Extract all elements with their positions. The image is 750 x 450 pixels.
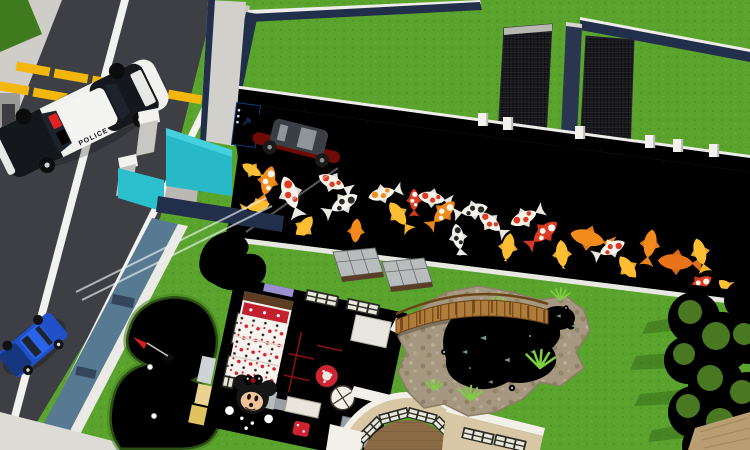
purple-flower [527,333,532,338]
fence-post [478,113,488,126]
design-3d-viewport[interactable]: POLICE [0,0,750,450]
fence-post [673,139,683,152]
golf-ball[interactable] [147,364,152,369]
purple-flower [441,349,447,355]
panel-bench[interactable] [382,258,433,292]
panel-bench[interactable] [333,248,384,282]
golf-ball[interactable] [151,413,156,418]
fence-post [503,117,513,130]
purple-flower [468,366,473,371]
desk-chair[interactable] [274,398,287,411]
fence-post [645,135,655,148]
fence-post [709,144,719,157]
purple-flower [563,305,568,310]
purple-flower [509,385,515,391]
fence-post [575,126,585,139]
